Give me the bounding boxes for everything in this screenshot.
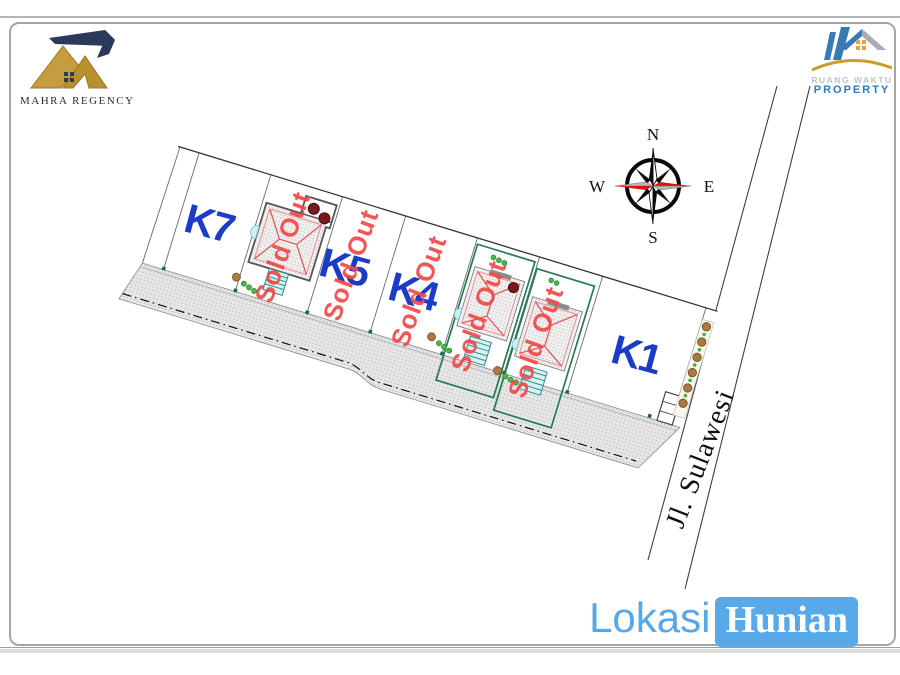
mahra-regency-logo: MAHRA REGENCY — [20, 28, 130, 107]
property-logo-text: PROPERTY — [808, 84, 896, 96]
footer-hunian-badge: Hunian — [715, 597, 858, 647]
site-plan-drawing — [0, 0, 900, 675]
bottom-divider-line-dark — [0, 647, 900, 648]
compass-south-label: S — [648, 228, 657, 248]
mahra-logo-mark — [27, 28, 123, 92]
compass-west-label: W — [589, 177, 605, 197]
compass-rose-icon — [615, 148, 691, 224]
compass-east-label: E — [704, 177, 714, 197]
ruang-waktu-logo: RUANG WAKTU PROPERTY — [808, 26, 896, 96]
flyer-page: N E S W K7 K5 K4 K1 Sold Out Sold Out So… — [0, 0, 900, 675]
footer-title: Lokasi Hunian — [589, 594, 858, 647]
compass-north-label: N — [647, 125, 659, 145]
footer-lokasi-text: Lokasi — [589, 594, 710, 642]
ruang-waktu-logo-mark — [810, 26, 894, 74]
bottom-divider-line-light — [0, 649, 900, 653]
mahra-logo-text: MAHRA REGENCY — [20, 95, 130, 107]
